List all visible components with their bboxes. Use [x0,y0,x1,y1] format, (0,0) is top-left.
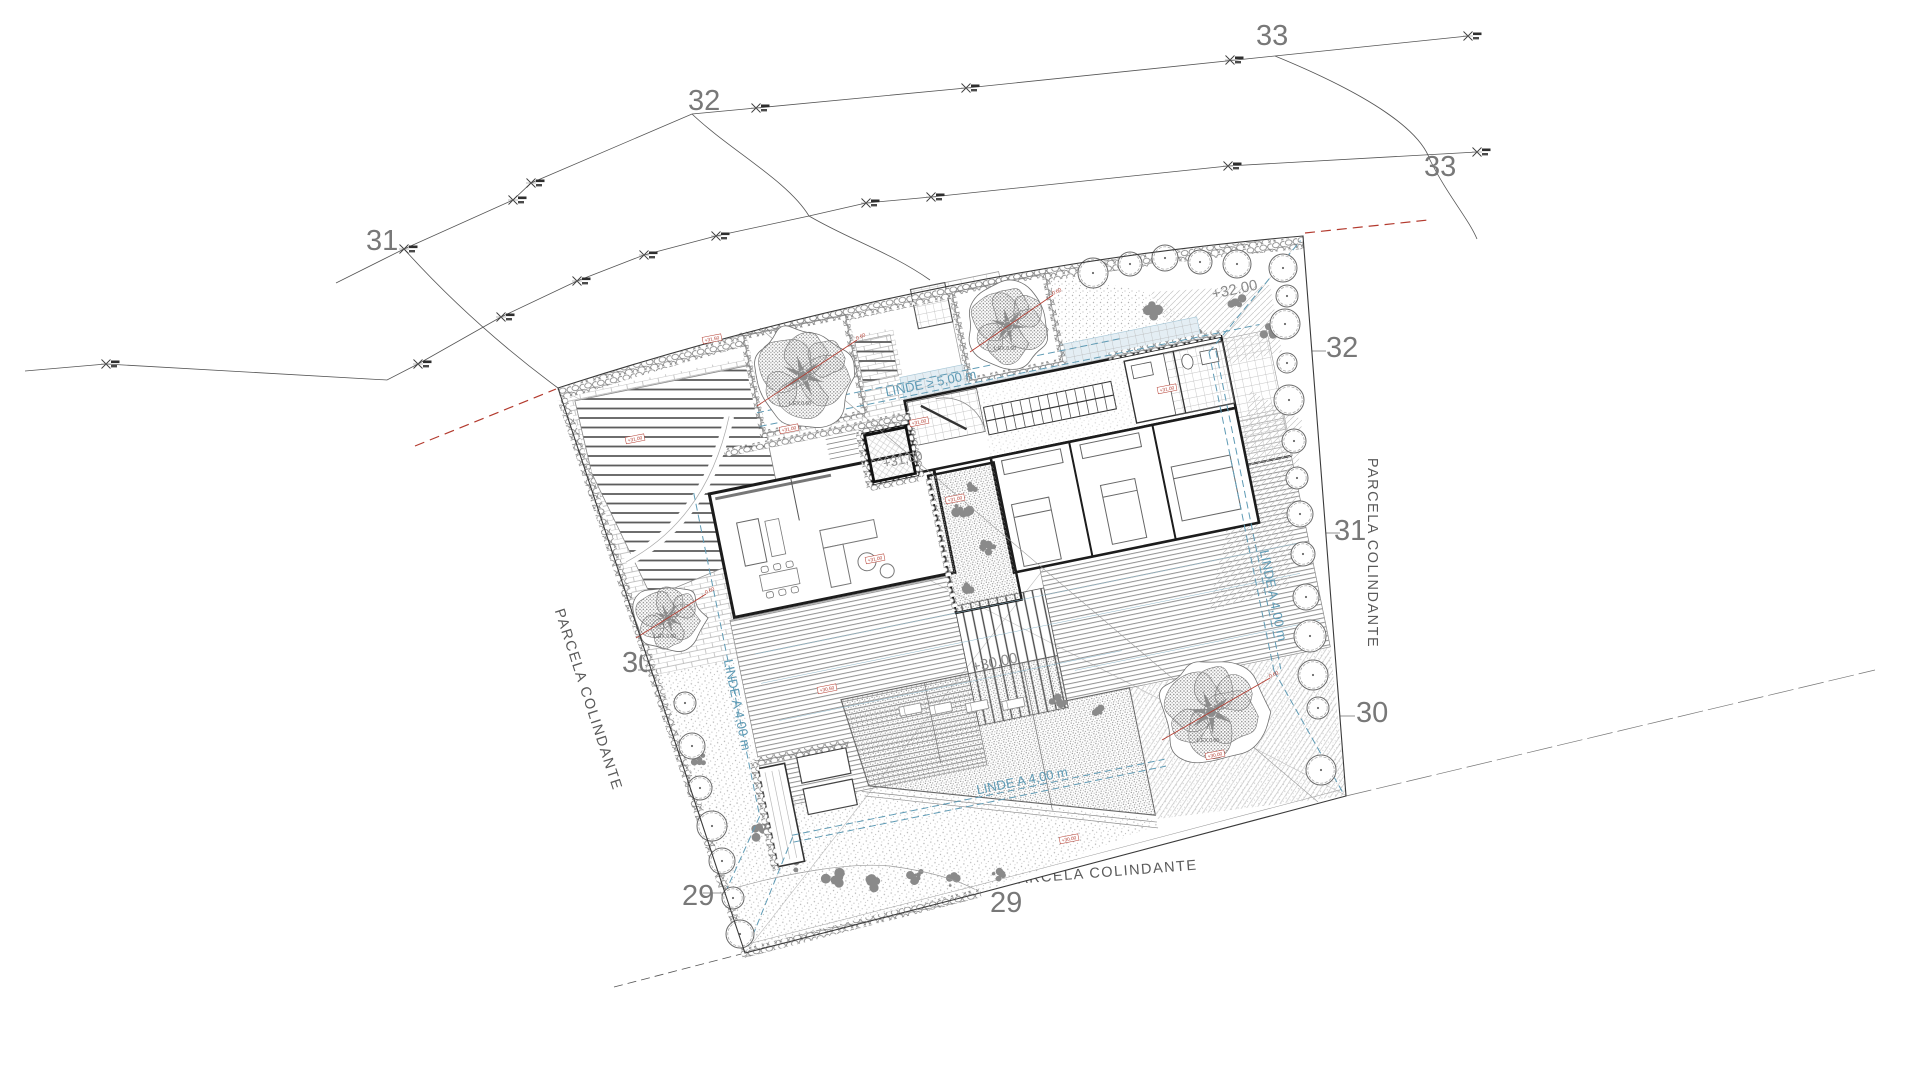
svg-text:31: 31 [1334,515,1366,547]
svg-text:33: 33 [1424,151,1456,183]
svg-text:30: 30 [1356,697,1388,729]
svg-text:L.EX.0.60: L.EX.0.60 [654,634,676,640]
svg-text:L.EX.0.60: L.EX.0.60 [1197,738,1219,744]
svg-text:32: 32 [688,85,720,117]
svg-text:33: 33 [1256,20,1288,52]
svg-text:L.EX.0.60: L.EX.0.60 [789,401,811,407]
svg-text:31: 31 [366,225,398,257]
svg-text:L.EX.0.60: L.EX.0.60 [994,346,1016,352]
svg-text:PARCELA COLINDANTE: PARCELA COLINDANTE [1364,458,1380,648]
svg-text:29: 29 [682,880,714,912]
svg-text:32: 32 [1326,332,1358,364]
svg-text:29: 29 [990,887,1022,919]
